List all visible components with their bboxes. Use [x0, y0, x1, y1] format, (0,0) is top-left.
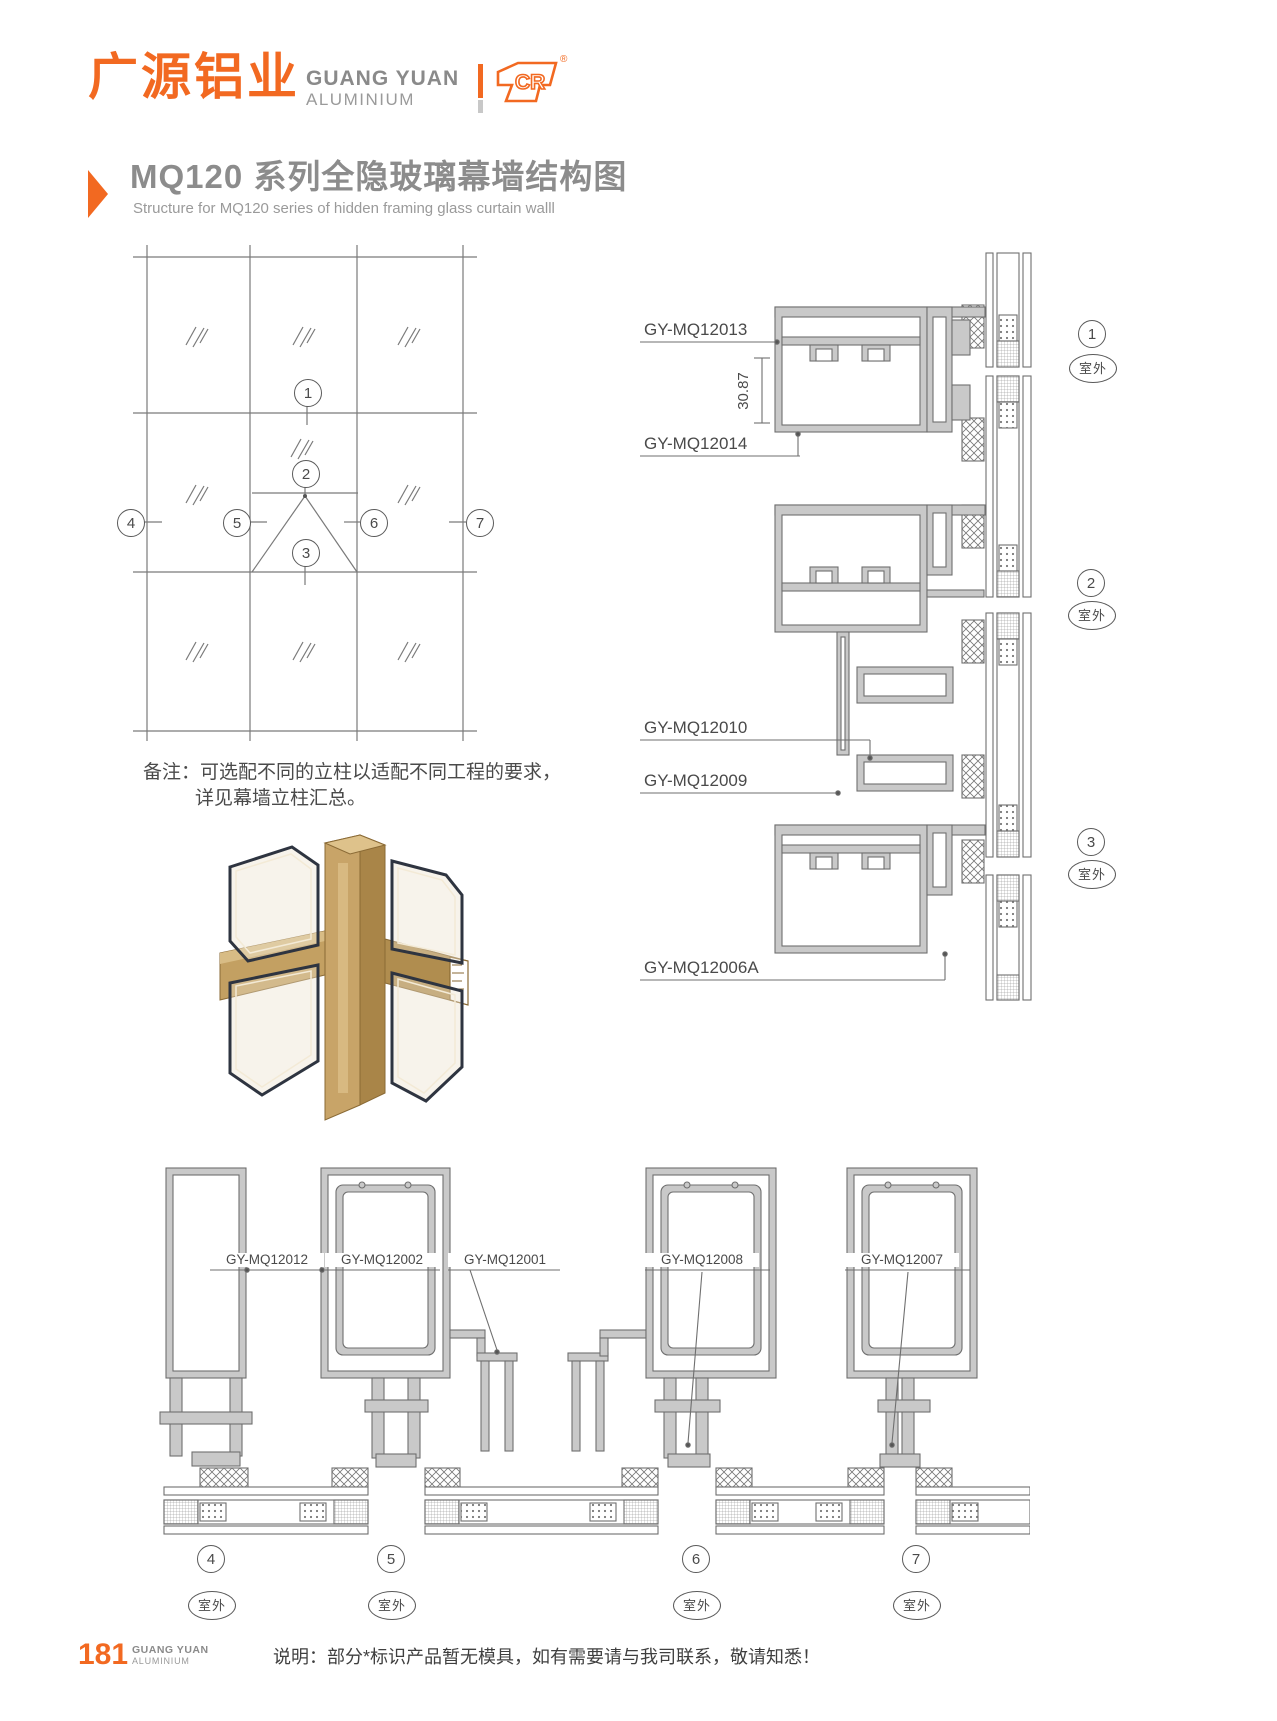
- outdoor-badge-3: 室外: [1068, 860, 1116, 889]
- profile-label-gy-mq12006a: GY-MQ12006A: [642, 959, 761, 976]
- elevation-callout-2: 2: [292, 460, 320, 488]
- curtain-wall-3d-illustration: [200, 833, 480, 1133]
- outdoor-badge-7: 室外: [893, 1591, 941, 1620]
- brand-name-english: GUANG YUAN: [306, 68, 459, 89]
- outdoor-badge-6: 室外: [673, 1591, 721, 1620]
- section-callout-4: 4: [197, 1545, 225, 1573]
- elevation-callout-1: 1: [294, 379, 322, 407]
- remark-line-2: 详见幕墙立柱汇总。: [143, 786, 561, 812]
- section-callout-6: 6: [682, 1545, 710, 1573]
- section-callout-3: 3: [1077, 828, 1105, 856]
- profile-label-gy-mq12008: GY-MQ12008: [645, 1253, 759, 1267]
- outdoor-badge-1: 室外: [1069, 354, 1117, 383]
- logo-separator-bar: [478, 64, 483, 98]
- footer-disclaimer: 说明：部分*标识产品暂无模具，如有需要请与我司联系，敬请知悉！: [273, 1647, 820, 1669]
- profile-label-gy-mq12009: GY-MQ12009: [642, 772, 749, 789]
- remark-note: 备注：可选配不同的立柱以适配不同工程的要求， 详见幕墙立柱汇总。: [143, 760, 561, 812]
- outdoor-badge-5: 室外: [368, 1591, 416, 1620]
- cr-logo-icon: CR: [494, 58, 560, 110]
- footer-brand-name: GUANG YUAN: [132, 1645, 209, 1656]
- page-title: MQ120 系列全隐玻璃幕墙结构图: [130, 160, 627, 193]
- catalog-page: 广源铝业 GUANG YUAN ALUMINIUM CR ® MQ120 系列全…: [0, 0, 1277, 1721]
- profile-label-gy-mq12002: GY-MQ12002: [325, 1253, 439, 1267]
- cr-logo-letters: CR: [515, 71, 545, 94]
- outdoor-badge-2: 室外: [1068, 601, 1116, 630]
- brand-logo-chinese: 广源铝业: [88, 52, 300, 102]
- page-subtitle: Structure for MQ120 series of hidden fra…: [133, 201, 555, 216]
- outdoor-badge-4: 室外: [188, 1591, 236, 1620]
- logo-separator-bar-gray: [478, 100, 483, 113]
- section-callout-5: 5: [377, 1545, 405, 1573]
- vertical-section-details-drawing: 30.87: [590, 245, 1130, 1035]
- title-arrow-icon: [88, 170, 108, 218]
- section-callout-7: 7: [902, 1545, 930, 1573]
- footer-brand-sub: ALUMINIUM: [132, 1657, 190, 1666]
- section-callout-2: 2: [1077, 569, 1105, 597]
- horizontal-section-details-drawing: [140, 1160, 1030, 1550]
- profile-label-gy-mq12012: GY-MQ12012: [210, 1253, 324, 1267]
- elevation-callout-5: 5: [223, 509, 251, 537]
- elevation-callout-7: 7: [466, 509, 494, 537]
- dimension-30-87: 30.87: [735, 372, 752, 410]
- section-callout-1: 1: [1078, 320, 1106, 348]
- profile-label-gy-mq12013: GY-MQ12013: [642, 321, 749, 338]
- elevation-callout-4: 4: [117, 509, 145, 537]
- page-number: 181: [78, 1640, 128, 1670]
- profile-label-gy-mq12010: GY-MQ12010: [642, 719, 749, 736]
- profile-label-gy-mq12014: GY-MQ12014: [642, 435, 749, 452]
- elevation-callout-3: 3: [292, 539, 320, 567]
- remark-line-1: 备注：可选配不同的立柱以适配不同工程的要求，: [143, 760, 561, 786]
- profile-label-gy-mq12007: GY-MQ12007: [845, 1253, 959, 1267]
- elevation-grid-drawing: [110, 235, 490, 755]
- brand-sub-english: ALUMINIUM: [306, 91, 415, 108]
- elevation-callout-6: 6: [360, 509, 388, 537]
- profile-label-gy-mq12001: GY-MQ12001: [448, 1253, 562, 1267]
- registered-mark: ®: [560, 54, 567, 65]
